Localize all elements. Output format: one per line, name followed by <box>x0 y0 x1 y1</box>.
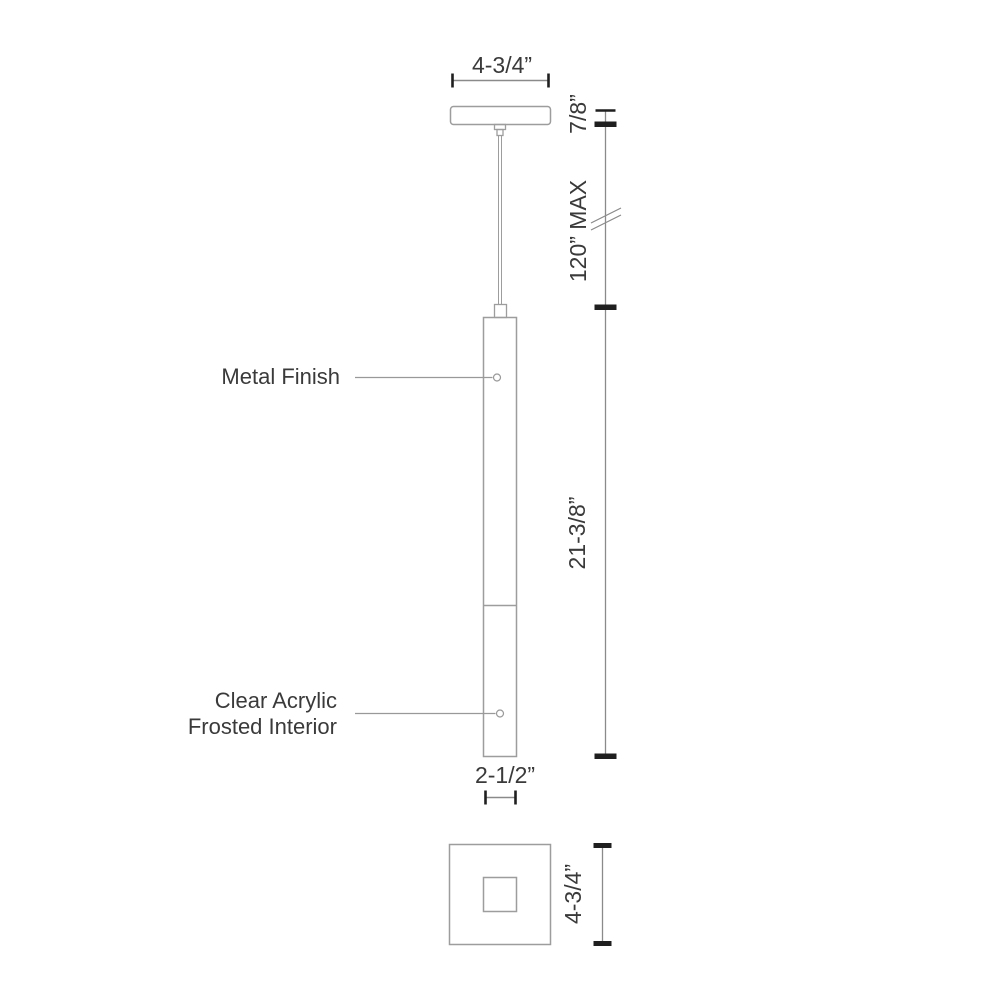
drawing-linework <box>0 0 1000 1000</box>
canopy-plan <box>450 845 551 945</box>
dim-label-cord-length: 120” MAX <box>566 161 590 301</box>
cord-connector-top <box>495 125 506 136</box>
dim-vertical-chain <box>591 111 621 760</box>
callout-diffuser-line2: Frosted Interior <box>137 714 337 740</box>
dim-plan-height <box>594 843 612 946</box>
callout-diffuser-line1: Clear Acrylic <box>137 688 337 714</box>
dim-fixture-width <box>485 791 516 805</box>
dim-label-plan-side: 4-3/4” <box>561 839 585 949</box>
pendant-body <box>484 318 517 757</box>
leader-diffuser <box>355 710 504 717</box>
canopy-front <box>451 107 551 125</box>
dim-label-fixture-width: 2-1/2” <box>435 763 575 787</box>
dim-label-fixture-height: 21-3/8” <box>565 473 589 593</box>
suspension-cable <box>499 136 502 305</box>
cord-grip <box>495 305 507 318</box>
dimension-drawing: 4-3/4” 7/8” 120” MAX 21-3/8” Metal Finis… <box>0 0 1000 1000</box>
callout-metal-finish: Metal Finish <box>140 364 340 390</box>
dim-label-canopy-height: 7/8” <box>566 74 590 154</box>
callout-diffuser: Clear Acrylic Frosted Interior <box>137 688 337 740</box>
leader-metal-finish <box>355 374 501 381</box>
dim-label-canopy-width: 4-3/4” <box>432 53 572 77</box>
